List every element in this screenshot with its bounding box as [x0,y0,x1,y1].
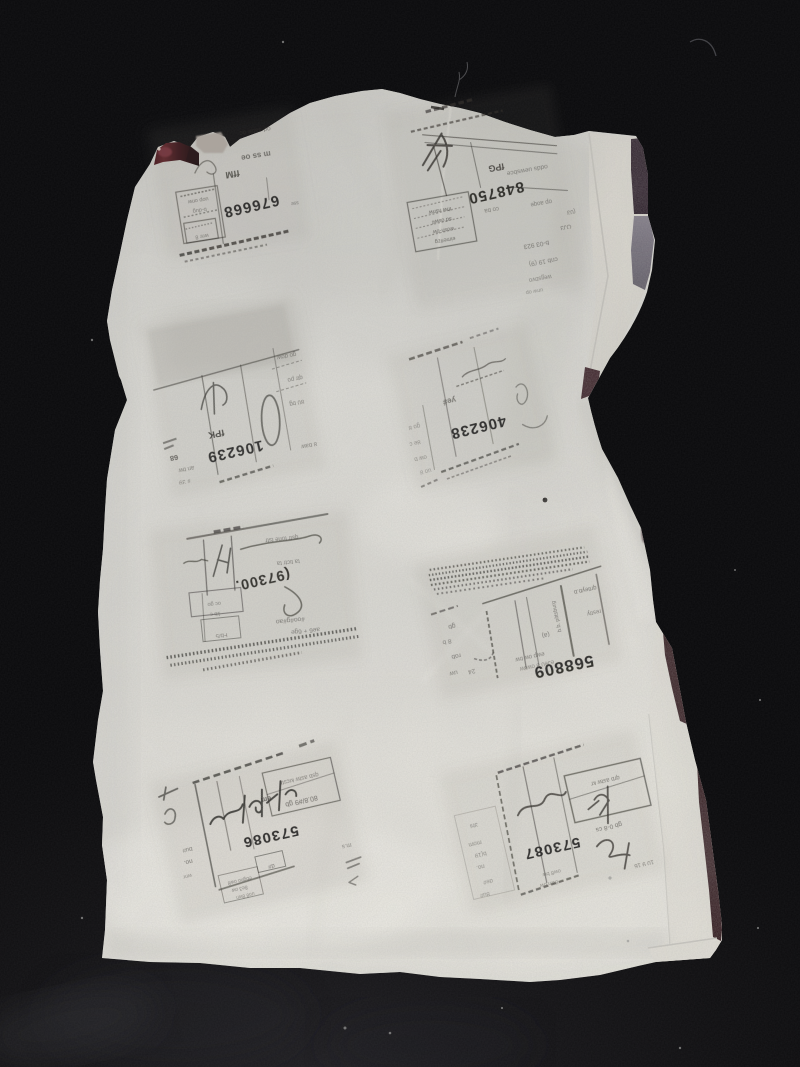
svg-text:1b c: 1b c [209,610,220,617]
svg-text:68: 68 [169,453,179,463]
svg-text:sse: sse [290,199,299,206]
svg-text:ffM: ffM [225,167,241,180]
